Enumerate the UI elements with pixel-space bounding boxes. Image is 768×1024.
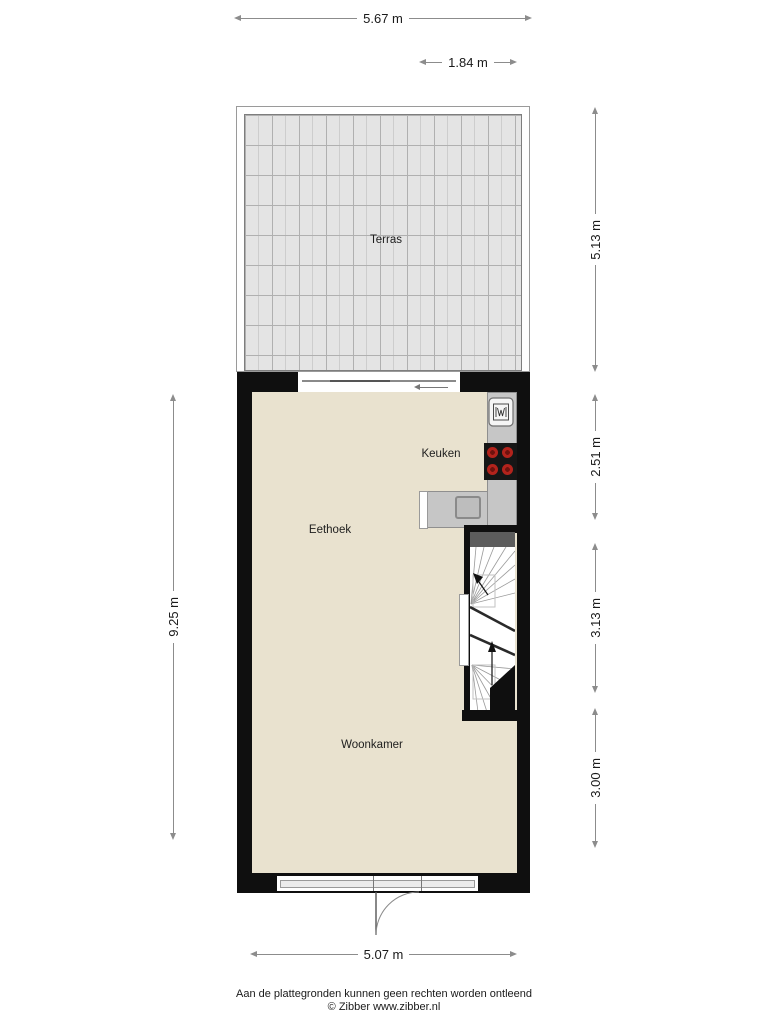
wall-right	[517, 372, 530, 893]
front-door-swing	[374, 889, 424, 939]
dimension-line	[241, 18, 357, 19]
dimension-label: 5.67 m	[357, 11, 409, 26]
dimension-line	[409, 18, 525, 19]
kitchen-counter-edge	[419, 491, 428, 529]
stair-landing	[470, 532, 515, 547]
dimension-line	[595, 114, 596, 214]
room-label-eethoek: Eethoek	[309, 524, 351, 536]
dimension-terrace-depth: 5.13 m	[587, 107, 603, 372]
dimension-arrow-up-icon	[592, 394, 598, 401]
room-label-woonkamer: Woonkamer	[341, 739, 403, 751]
dimension-arrow-up-icon	[170, 394, 176, 401]
burner-icon	[502, 447, 513, 458]
footer-copyright: © Zibber www.zibber.nl	[0, 1001, 768, 1013]
dimension-line	[595, 644, 596, 686]
oven-icon	[488, 397, 514, 427]
dimension-stairs-depth: 3.13 m	[587, 543, 603, 693]
dimension-arrow-right-icon	[510, 59, 517, 65]
dimension-line	[595, 483, 596, 513]
room-label-terras: Terras	[370, 234, 402, 246]
sliding-direction-arrow-icon	[414, 384, 420, 390]
staircase	[470, 547, 515, 712]
dimension-line	[595, 550, 596, 592]
dimension-label: 3.13 m	[588, 592, 603, 644]
dimension-arrow-down-icon	[170, 833, 176, 840]
dimension-label: 2.51 m	[588, 431, 603, 483]
floorplan-canvas: 5.67 m 1.84 m 5.13 m 2.51 m 3.13 m 3.00 …	[0, 0, 768, 1024]
cooktop	[484, 443, 517, 480]
dimension-label: 9.25 m	[166, 591, 181, 643]
dimension-terrace-width: 1.84 m	[419, 55, 517, 69]
dimension-bottom-width: 5.07 m	[250, 947, 517, 961]
dimension-label: 5.13 m	[588, 214, 603, 266]
sliding-door-track	[420, 387, 448, 388]
kitchen-sink	[455, 496, 481, 519]
dimension-label: 5.07 m	[358, 947, 410, 962]
room-label-keuken: Keuken	[421, 448, 460, 460]
dimension-arrow-right-icon	[510, 951, 517, 957]
dimension-line	[595, 804, 596, 841]
dimension-line	[426, 62, 442, 63]
dimension-arrow-up-icon	[592, 708, 598, 715]
dimension-arrow-down-icon	[592, 513, 598, 520]
dimension-line	[494, 62, 510, 63]
dimension-top-width: 5.67 m	[234, 11, 532, 25]
dimension-living-depth: 3.00 m	[587, 708, 603, 848]
burner-icon	[502, 464, 513, 475]
sliding-door-panel-line	[330, 380, 390, 382]
dimension-line	[595, 401, 596, 431]
dimension-line	[173, 643, 174, 833]
footer-disclaimer: Aan de plattegronden kunnen geen rechten…	[0, 988, 768, 1000]
sliding-door	[298, 372, 460, 392]
window-sill	[280, 880, 475, 888]
dimension-arrow-down-icon	[592, 841, 598, 848]
burner-icon	[487, 447, 498, 458]
dimension-arrow-right-icon	[525, 15, 532, 21]
dimension-house-depth: 9.25 m	[165, 394, 181, 840]
stair-wall-bottom	[462, 710, 530, 721]
dimension-arrow-left-icon	[419, 59, 426, 65]
burner-icon	[487, 464, 498, 475]
dimension-line	[595, 715, 596, 752]
stair-handrail	[459, 594, 469, 666]
dimension-label: 3.00 m	[588, 752, 603, 804]
dimension-arrow-down-icon	[592, 686, 598, 693]
dimension-line	[409, 954, 510, 955]
dimension-label: 1.84 m	[442, 55, 494, 70]
dimension-line	[595, 265, 596, 365]
dimension-arrow-up-icon	[592, 543, 598, 550]
dimension-arrow-left-icon	[234, 15, 241, 21]
wall-left	[237, 372, 252, 893]
dimension-line	[173, 401, 174, 591]
dimension-arrow-left-icon	[250, 951, 257, 957]
dimension-line	[257, 954, 358, 955]
dimension-arrow-down-icon	[592, 365, 598, 372]
dimension-arrow-up-icon	[592, 107, 598, 114]
dimension-kitchen-depth: 2.51 m	[587, 394, 603, 520]
